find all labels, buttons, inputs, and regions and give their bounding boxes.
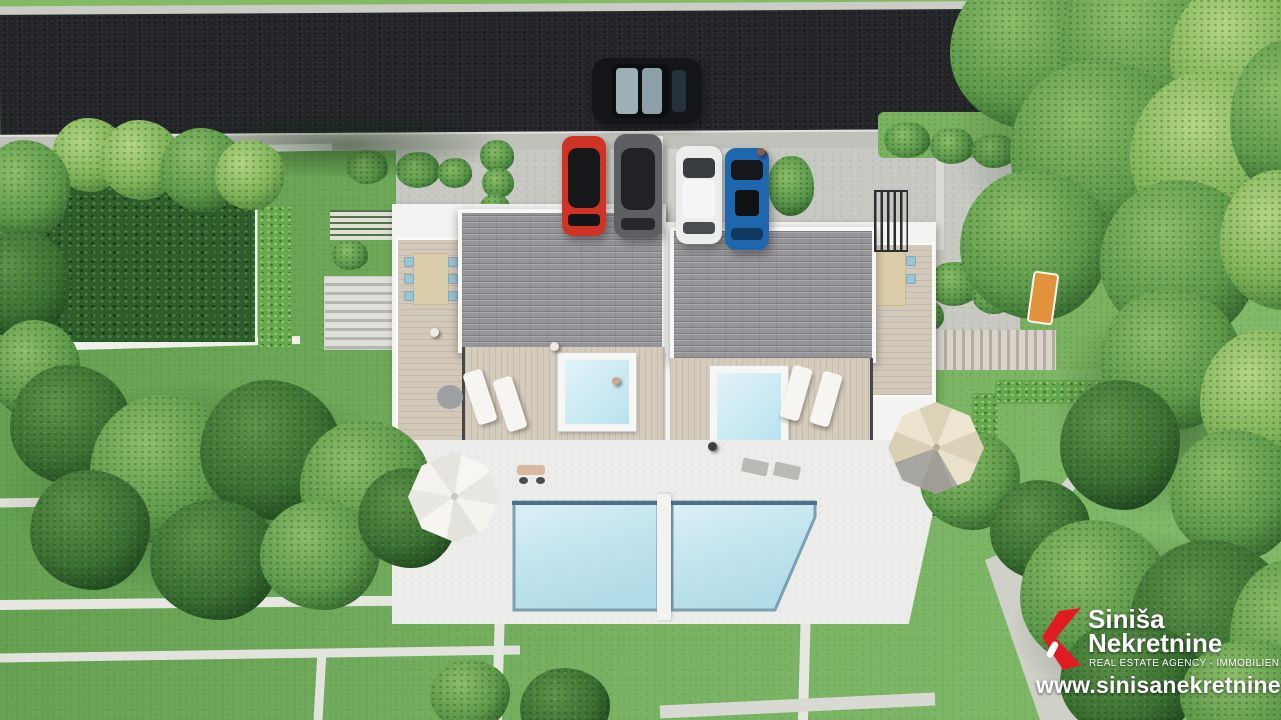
- parked-car-white: [676, 146, 722, 244]
- metal-gate: [874, 190, 908, 252]
- tree: [30, 470, 150, 590]
- parked-car-blue: [725, 148, 769, 250]
- person-marker: [430, 328, 439, 337]
- car-roof: [683, 180, 715, 218]
- car-sunroof: [735, 190, 759, 216]
- car-windshield: [731, 160, 763, 180]
- agency-watermark: Siniša Nekretnine REAL ESTATE AGENCY - I…: [1030, 600, 1281, 710]
- pool-right: [672, 502, 815, 610]
- car-on-road: [592, 58, 702, 124]
- agency-logo-icon: [1042, 608, 1082, 670]
- parasol-pole-tip: [451, 493, 458, 500]
- car-window: [616, 68, 638, 114]
- parked-car-gray: [614, 134, 662, 238]
- person-marker: [550, 342, 559, 351]
- car-window: [642, 68, 662, 114]
- parked-car-red: [562, 136, 606, 236]
- car-rear-window: [621, 218, 655, 230]
- brand-website: www.sinisanekretnine.hr: [1036, 672, 1281, 699]
- pool-divider-wall: [657, 494, 671, 620]
- tree: [215, 140, 285, 210]
- brand-name-line2: Nekretnine: [1088, 631, 1222, 655]
- car-rear-window: [568, 214, 600, 226]
- parasol-pole-tip: [933, 444, 940, 451]
- person-marker: [757, 148, 765, 156]
- car-rear-window: [683, 222, 715, 234]
- pool-left: [514, 502, 658, 610]
- car-rear-window: [731, 228, 763, 240]
- brand-tagline: REAL ESTATE AGENCY - IMMOBILIEN: [1089, 658, 1279, 669]
- car-windshield: [683, 158, 715, 178]
- aerial-render-scene: Siniša Nekretnine REAL ESTATE AGENCY - I…: [0, 0, 1281, 720]
- logo-chevron: [1042, 608, 1081, 670]
- tree: [430, 660, 510, 720]
- car-glass: [568, 148, 600, 208]
- person-marker: [708, 442, 717, 451]
- car-windshield: [672, 70, 686, 112]
- tree: [1060, 380, 1180, 510]
- car-glass: [621, 148, 655, 210]
- person-marker: [612, 377, 620, 385]
